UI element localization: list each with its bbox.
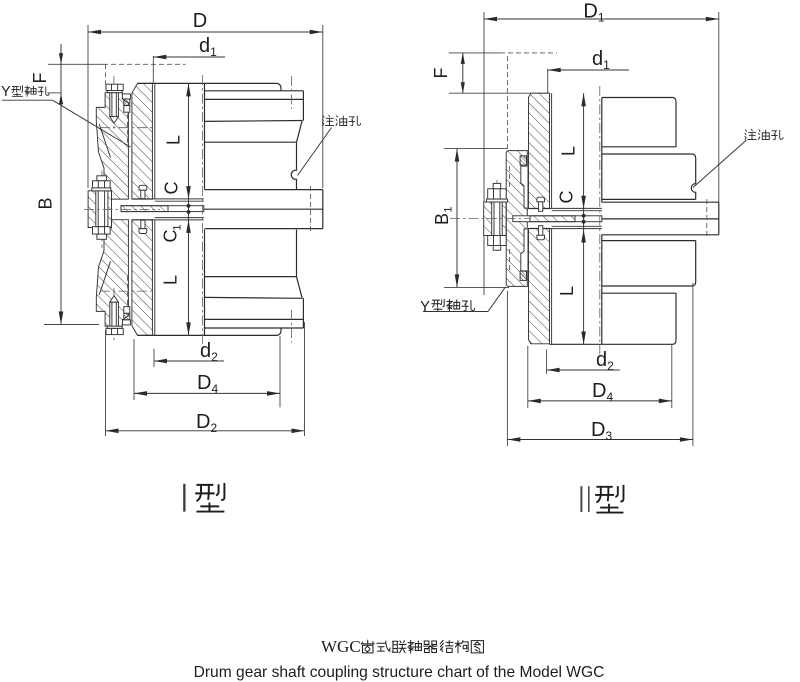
svg-text:L: L	[557, 286, 577, 296]
svg-text:L: L	[164, 135, 184, 145]
svg-text:Y: Y	[1, 84, 11, 100]
svg-text:F: F	[431, 68, 451, 79]
svg-text:C: C	[557, 191, 577, 204]
svg-text:1: 1	[172, 224, 184, 230]
svg-text:L: L	[161, 275, 181, 285]
svg-text:Drum gear shaft coupling struc: Drum gear shaft coupling structure chart…	[194, 664, 605, 681]
svg-text:F: F	[30, 73, 50, 84]
svg-text:L: L	[559, 146, 579, 156]
svg-text:1: 1	[443, 206, 455, 212]
svg-text:B: B	[36, 197, 56, 209]
svg-text:Y: Y	[420, 298, 430, 315]
svg-text:D: D	[193, 10, 207, 32]
svg-text:C: C	[162, 182, 182, 195]
svg-text:WGC: WGC	[321, 637, 361, 656]
svg-text:B: B	[432, 213, 452, 225]
